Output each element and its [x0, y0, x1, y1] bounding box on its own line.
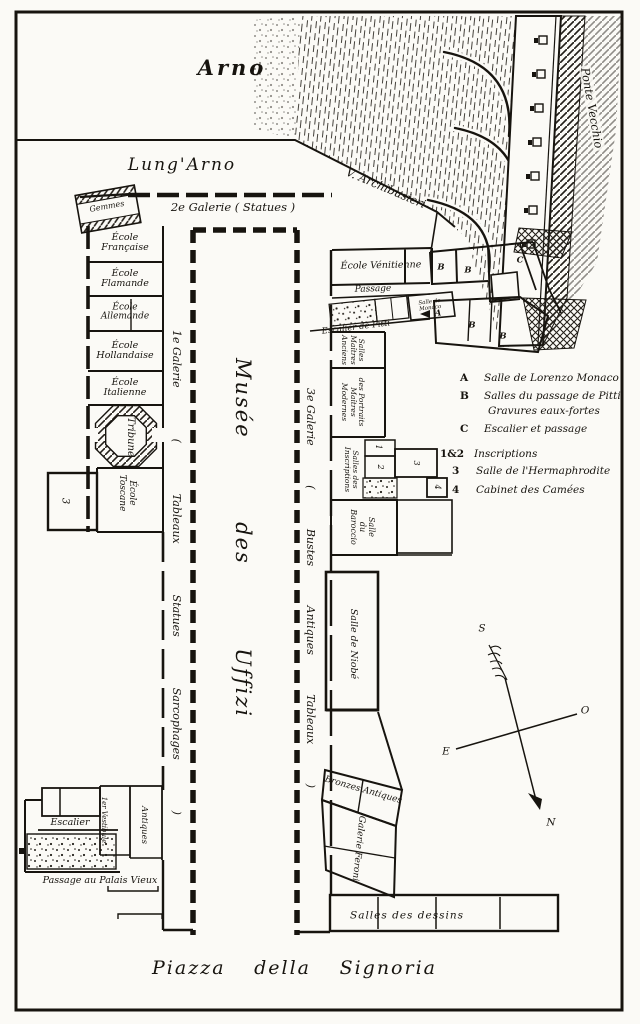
- legend-row-gravures: Gravures eaux-fortes: [488, 405, 600, 417]
- room-number-4: 4: [433, 484, 441, 489]
- salle-niobe-label: Salle de Niobé: [348, 588, 358, 700]
- room-letter-b: B: [468, 322, 475, 331]
- ecole-italienne-label: ÉcoleItalienne: [104, 378, 147, 398]
- legend-row-1-2: 1&2Inscriptions: [440, 448, 537, 460]
- room-number-1: 1: [374, 444, 382, 449]
- legend-key: 1&2: [440, 448, 474, 460]
- compass-north-label: N: [546, 817, 555, 828]
- compass-south-label: S: [478, 623, 485, 634]
- room-letter-c: C: [517, 257, 524, 266]
- room-letter-b: B: [437, 264, 444, 273]
- compass-feather-icon: [488, 646, 505, 679]
- gallery-3-label: 3e Galerie(BustesAntiquesTableaux): [304, 388, 317, 788]
- room-letter-a: A: [435, 310, 442, 319]
- vestibule-label: 1er Vestibule: [99, 791, 107, 849]
- legend-row-c: CEscalier et passage: [460, 423, 587, 435]
- legend-row-a: ASalle de Lorenzo Monaco: [460, 372, 619, 384]
- room-3-west-label: 3: [59, 498, 70, 504]
- room-number-3: 3: [412, 460, 420, 465]
- ecole-francaise-label: ÉcoleFrançaise: [101, 233, 148, 253]
- compass-rose: [456, 645, 577, 810]
- compass-ouest-label: O: [581, 705, 590, 716]
- escalier-label: Escalier: [50, 818, 89, 828]
- ecole-allemande-label: ÉcoleAllemande: [101, 304, 149, 323]
- salles-dessins-label: Salles des dessins: [350, 910, 464, 921]
- inscriptions-label: Salles desInscriptions: [343, 441, 360, 498]
- legend-key: B: [460, 390, 484, 402]
- legend-key: 4: [452, 484, 476, 496]
- legend-key: A: [460, 372, 484, 384]
- antiques-label: Antiques: [139, 798, 148, 852]
- legend-row-3: 3Salle de l'Hermaphrodite: [452, 465, 610, 477]
- lungarno-label: Lung'Arno: [128, 157, 236, 175]
- portraits-modernes-label: des PortraitsMaîtresModernes: [340, 372, 365, 432]
- passage-label: Passage: [354, 285, 391, 296]
- legend-key: 3: [452, 465, 476, 477]
- baroccio-label: SalleduBaroccio: [349, 502, 375, 552]
- ecole-flamande-label: ÉcoleFlamande: [101, 269, 149, 289]
- passage-palais-vieux-label: Passage au Palais Vieux: [43, 876, 158, 886]
- legend-key: C: [460, 423, 484, 435]
- portraits-anciens-label: SallesMaîtresAnciens: [340, 334, 365, 366]
- legend-row-4: 4Cabinet des Camées: [452, 484, 585, 496]
- legend-row-b: BSalles du passage de Pitti: [460, 390, 621, 402]
- room-letter-b: B: [499, 333, 506, 342]
- gallery-2-label: 2e Galerie ( Statues ): [171, 201, 295, 213]
- gallery-1-label: 1e Galerie(TableauxStatuesSarcophages): [170, 330, 183, 815]
- arno-label: Arno: [198, 57, 267, 79]
- musee-des-uffizi-label: MuséedesUffizi: [231, 358, 255, 718]
- ecole-hollandaise-label: ÉcoleHollandaise: [96, 341, 153, 361]
- floor-plan-drawing: [0, 0, 640, 1024]
- ecole-toscane-label: ÉcoleToscane: [116, 457, 136, 529]
- compass-east-label: E: [442, 746, 450, 757]
- room-number-2: 2: [376, 464, 384, 469]
- piazza-label: PiazzadellaSignoria: [152, 957, 437, 979]
- uffizi-floor-plan: Arno Lung'Arno V. Archibusieri Ponte Vec…: [0, 0, 640, 1024]
- ecole-venitienne-label: École Vénitienne: [341, 260, 422, 271]
- room-letter-b: B: [464, 267, 471, 276]
